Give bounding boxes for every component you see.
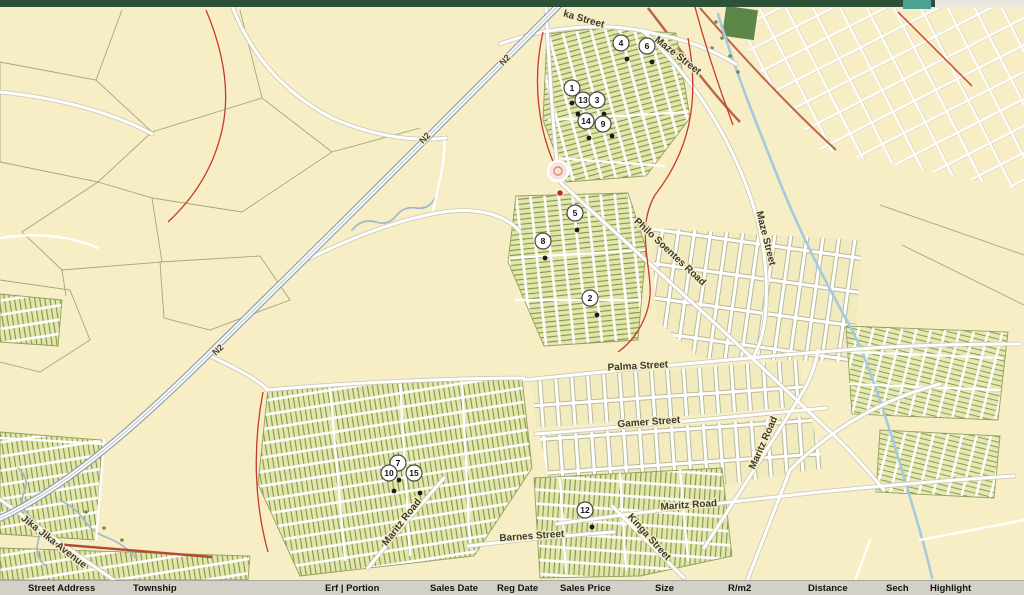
map-marker[interactable]: 3	[589, 92, 605, 108]
svg-text:14: 14	[581, 116, 591, 126]
column-header-reg-date[interactable]: Reg Date	[497, 583, 538, 594]
svg-text:8: 8	[541, 236, 546, 246]
column-header-r-per-m2[interactable]: R/m2	[728, 583, 751, 594]
svg-text:1: 1	[570, 83, 575, 93]
map-marker[interactable]: 5	[567, 205, 583, 221]
top-toolbar	[0, 0, 1024, 8]
map-marker[interactable]: 12	[577, 502, 593, 518]
subject-pin-dot	[557, 190, 563, 196]
column-header-street-address[interactable]: Street Address	[28, 583, 95, 594]
column-header-distance[interactable]: Distance	[808, 583, 848, 594]
map-marker[interactable]: 9	[595, 116, 611, 132]
svg-text:13: 13	[578, 95, 588, 105]
app-window: ka Street Maze Street Maze Street Philo …	[0, 0, 1024, 595]
map-marker[interactable]: 15	[406, 465, 422, 481]
svg-text:2: 2	[588, 293, 593, 303]
toolbar-strip-right	[935, 0, 1024, 7]
toolbar-accent[interactable]	[903, 0, 931, 9]
map-marker[interactable]: 8	[535, 233, 551, 249]
map-marker[interactable]: 14	[578, 113, 594, 129]
map-marker[interactable]: 6	[639, 38, 655, 54]
column-header-sech[interactable]: Sech	[886, 583, 909, 594]
svg-text:12: 12	[580, 505, 590, 515]
map-marker[interactable]: 4	[613, 35, 629, 51]
svg-text:3: 3	[595, 95, 600, 105]
svg-text:9: 9	[601, 119, 606, 129]
map-canvas[interactable]: ka Street Maze Street Maze Street Philo …	[0, 0, 1024, 595]
column-header-sales-price[interactable]: Sales Price	[560, 583, 611, 594]
svg-text:6: 6	[645, 41, 650, 51]
column-header-township[interactable]: Township	[133, 583, 177, 594]
column-header-erf-portion[interactable]: Erf | Portion	[325, 583, 379, 594]
column-header-sales-date[interactable]: Sales Date	[430, 583, 478, 594]
svg-text:5: 5	[573, 208, 578, 218]
map-marker[interactable]: 2	[582, 290, 598, 306]
results-table-header: Street Address Township Erf | Portion Sa…	[0, 580, 1024, 595]
svg-text:4: 4	[619, 38, 624, 48]
svg-text:10: 10	[384, 468, 394, 478]
column-header-size[interactable]: Size	[655, 583, 674, 594]
svg-text:7: 7	[396, 458, 401, 468]
column-header-highlight[interactable]: Highlight	[930, 583, 971, 594]
map-marker[interactable]: 10	[381, 465, 397, 481]
svg-text:15: 15	[409, 468, 419, 478]
toolbar-strip	[0, 0, 935, 7]
